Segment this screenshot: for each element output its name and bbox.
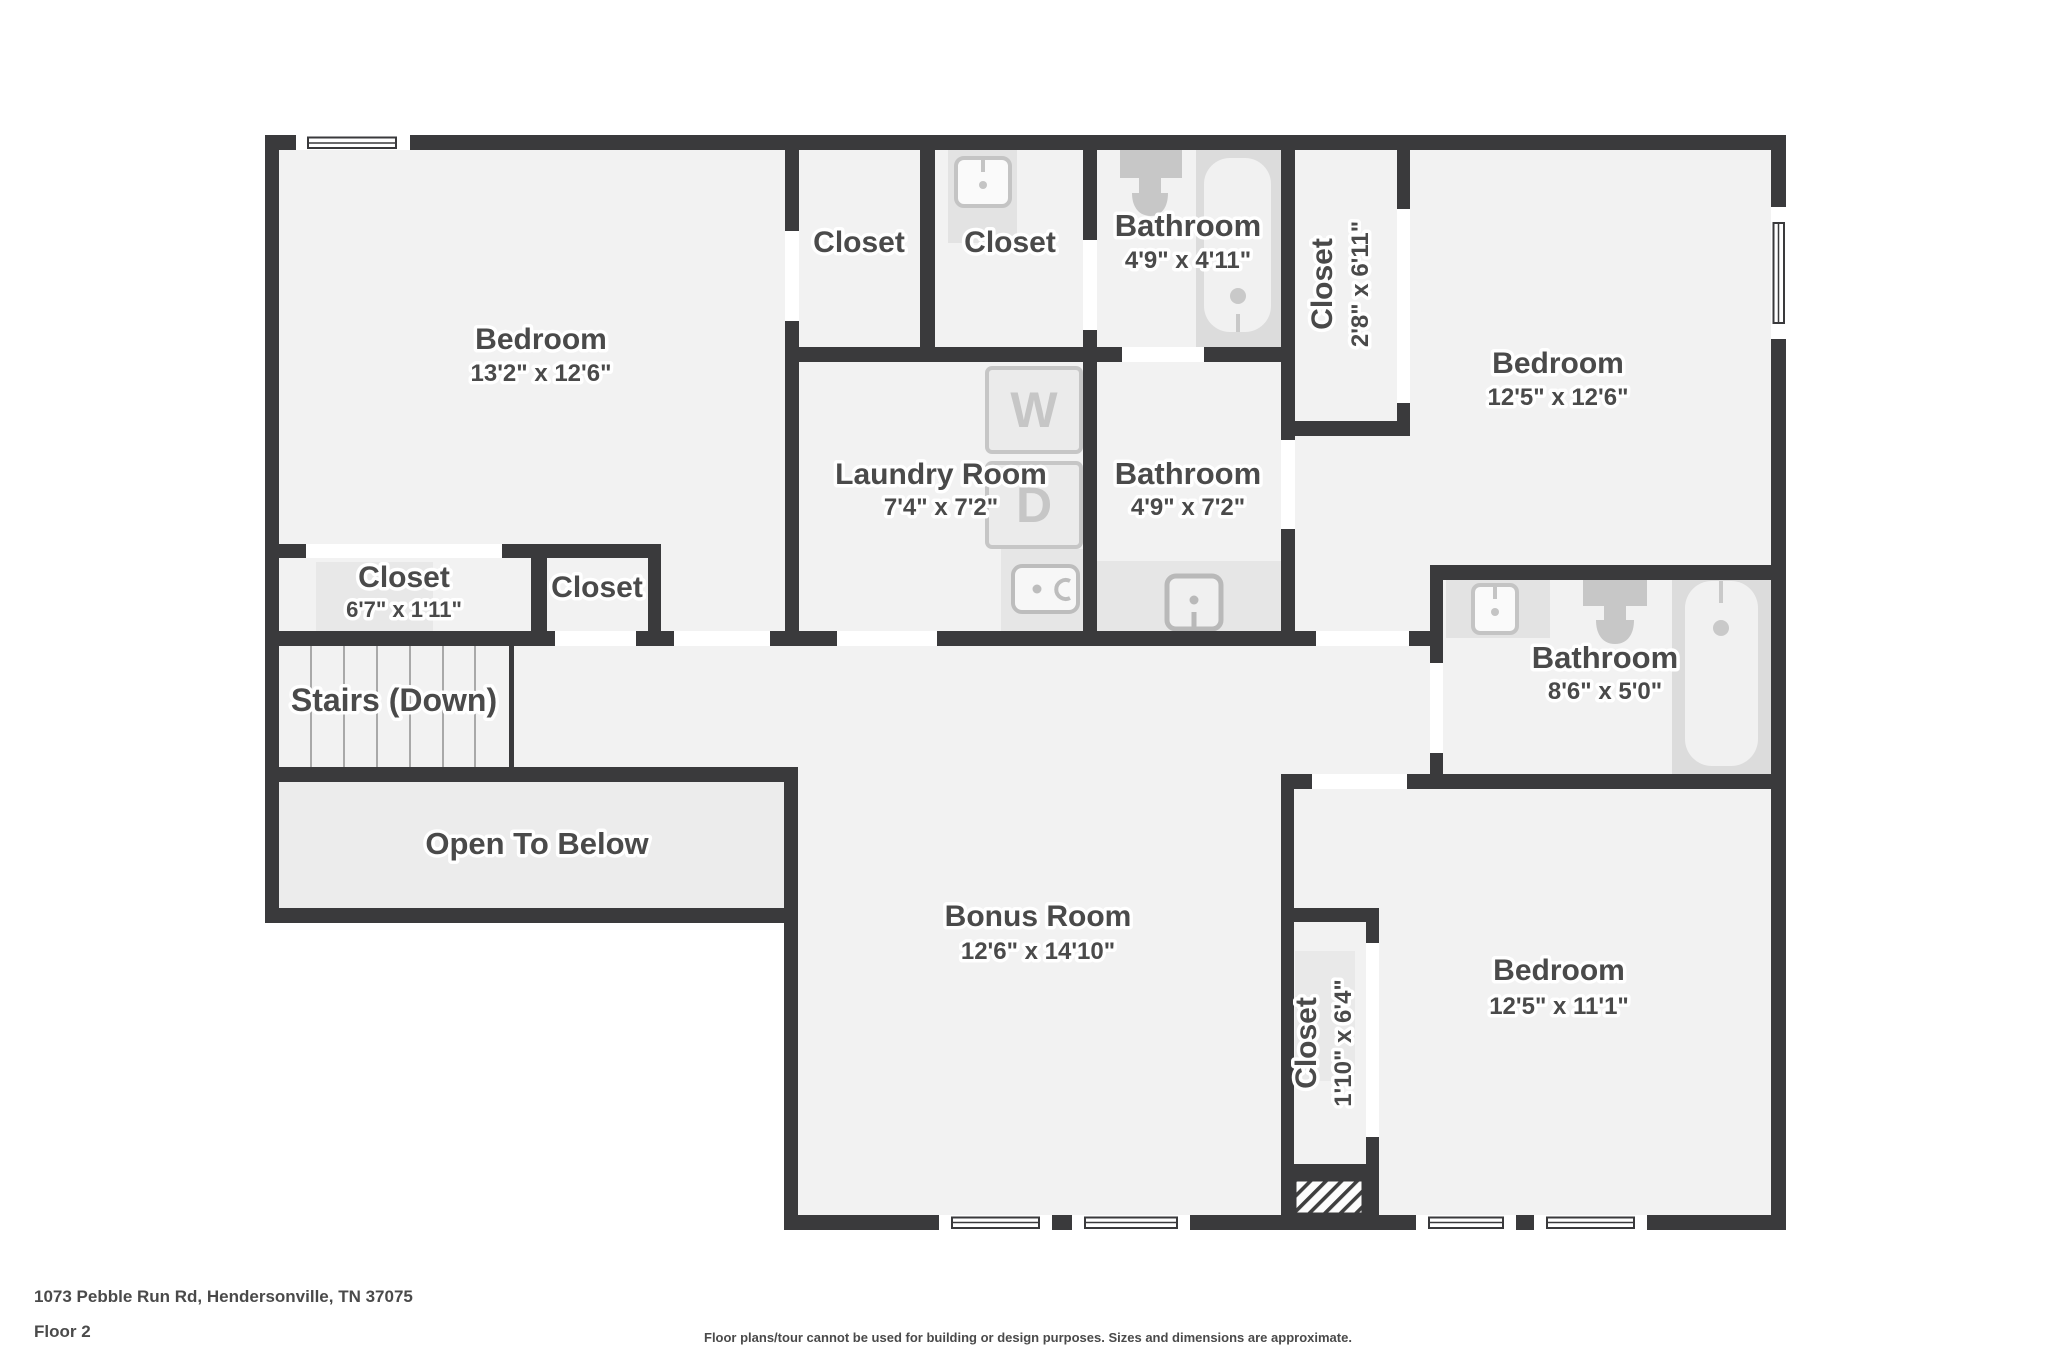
svg-text:Floor plans/tour cannot be use: Floor plans/tour cannot be used for buil…	[704, 1330, 1352, 1345]
svg-text:Bedroom: Bedroom	[1493, 954, 1625, 987]
svg-text:Bedroom: Bedroom	[1492, 347, 1624, 380]
svg-text:1073 Pebble Run Rd, Hendersonv: 1073 Pebble Run Rd, Hendersonville, TN 3…	[34, 1287, 413, 1306]
svg-text:Bonus Room: Bonus Room	[945, 900, 1132, 933]
svg-text:Laundry Room: Laundry Room	[835, 458, 1047, 491]
svg-text:Bathroom: Bathroom	[1115, 456, 1261, 491]
svg-text:4'9" x 7'2": 4'9" x 7'2"	[1131, 494, 1245, 521]
svg-text:2'8" x 6'11": 2'8" x 6'11"	[1347, 221, 1374, 347]
svg-text:Bedroom: Bedroom	[475, 323, 607, 356]
svg-text:Stairs (Down): Stairs (Down)	[291, 682, 497, 718]
svg-text:Closet: Closet	[813, 226, 905, 259]
svg-text:7'4" x 7'2": 7'4" x 7'2"	[884, 494, 998, 521]
svg-text:Open To Below: Open To Below	[425, 826, 649, 861]
svg-text:6'7" x 1'11": 6'7" x 1'11"	[346, 597, 462, 622]
svg-text:8'6" x 5'0": 8'6" x 5'0"	[1548, 678, 1662, 705]
svg-text:12'6" x 14'10": 12'6" x 14'10"	[961, 938, 1115, 965]
svg-text:12'5" x 11'1": 12'5" x 11'1"	[1489, 993, 1629, 1020]
svg-text:Bathroom: Bathroom	[1115, 208, 1261, 243]
svg-text:Bathroom: Bathroom	[1532, 640, 1678, 675]
svg-text:Closet: Closet	[358, 561, 450, 594]
svg-text:Closet: Closet	[551, 571, 643, 604]
svg-text:12'5" x 12'6": 12'5" x 12'6"	[1488, 384, 1629, 411]
svg-text:Closet: Closet	[964, 226, 1056, 259]
svg-text:W: W	[1010, 382, 1058, 438]
svg-text:Closet: Closet	[1306, 238, 1339, 330]
svg-text:13'2" x 12'6": 13'2" x 12'6"	[471, 360, 612, 387]
svg-text:Closet: Closet	[1290, 997, 1323, 1089]
svg-text:Floor 2: Floor 2	[34, 1322, 91, 1341]
svg-text:4'9" x 4'11": 4'9" x 4'11"	[1125, 247, 1251, 274]
svg-text:1'10" x 6'4": 1'10" x 6'4"	[1330, 979, 1357, 1107]
